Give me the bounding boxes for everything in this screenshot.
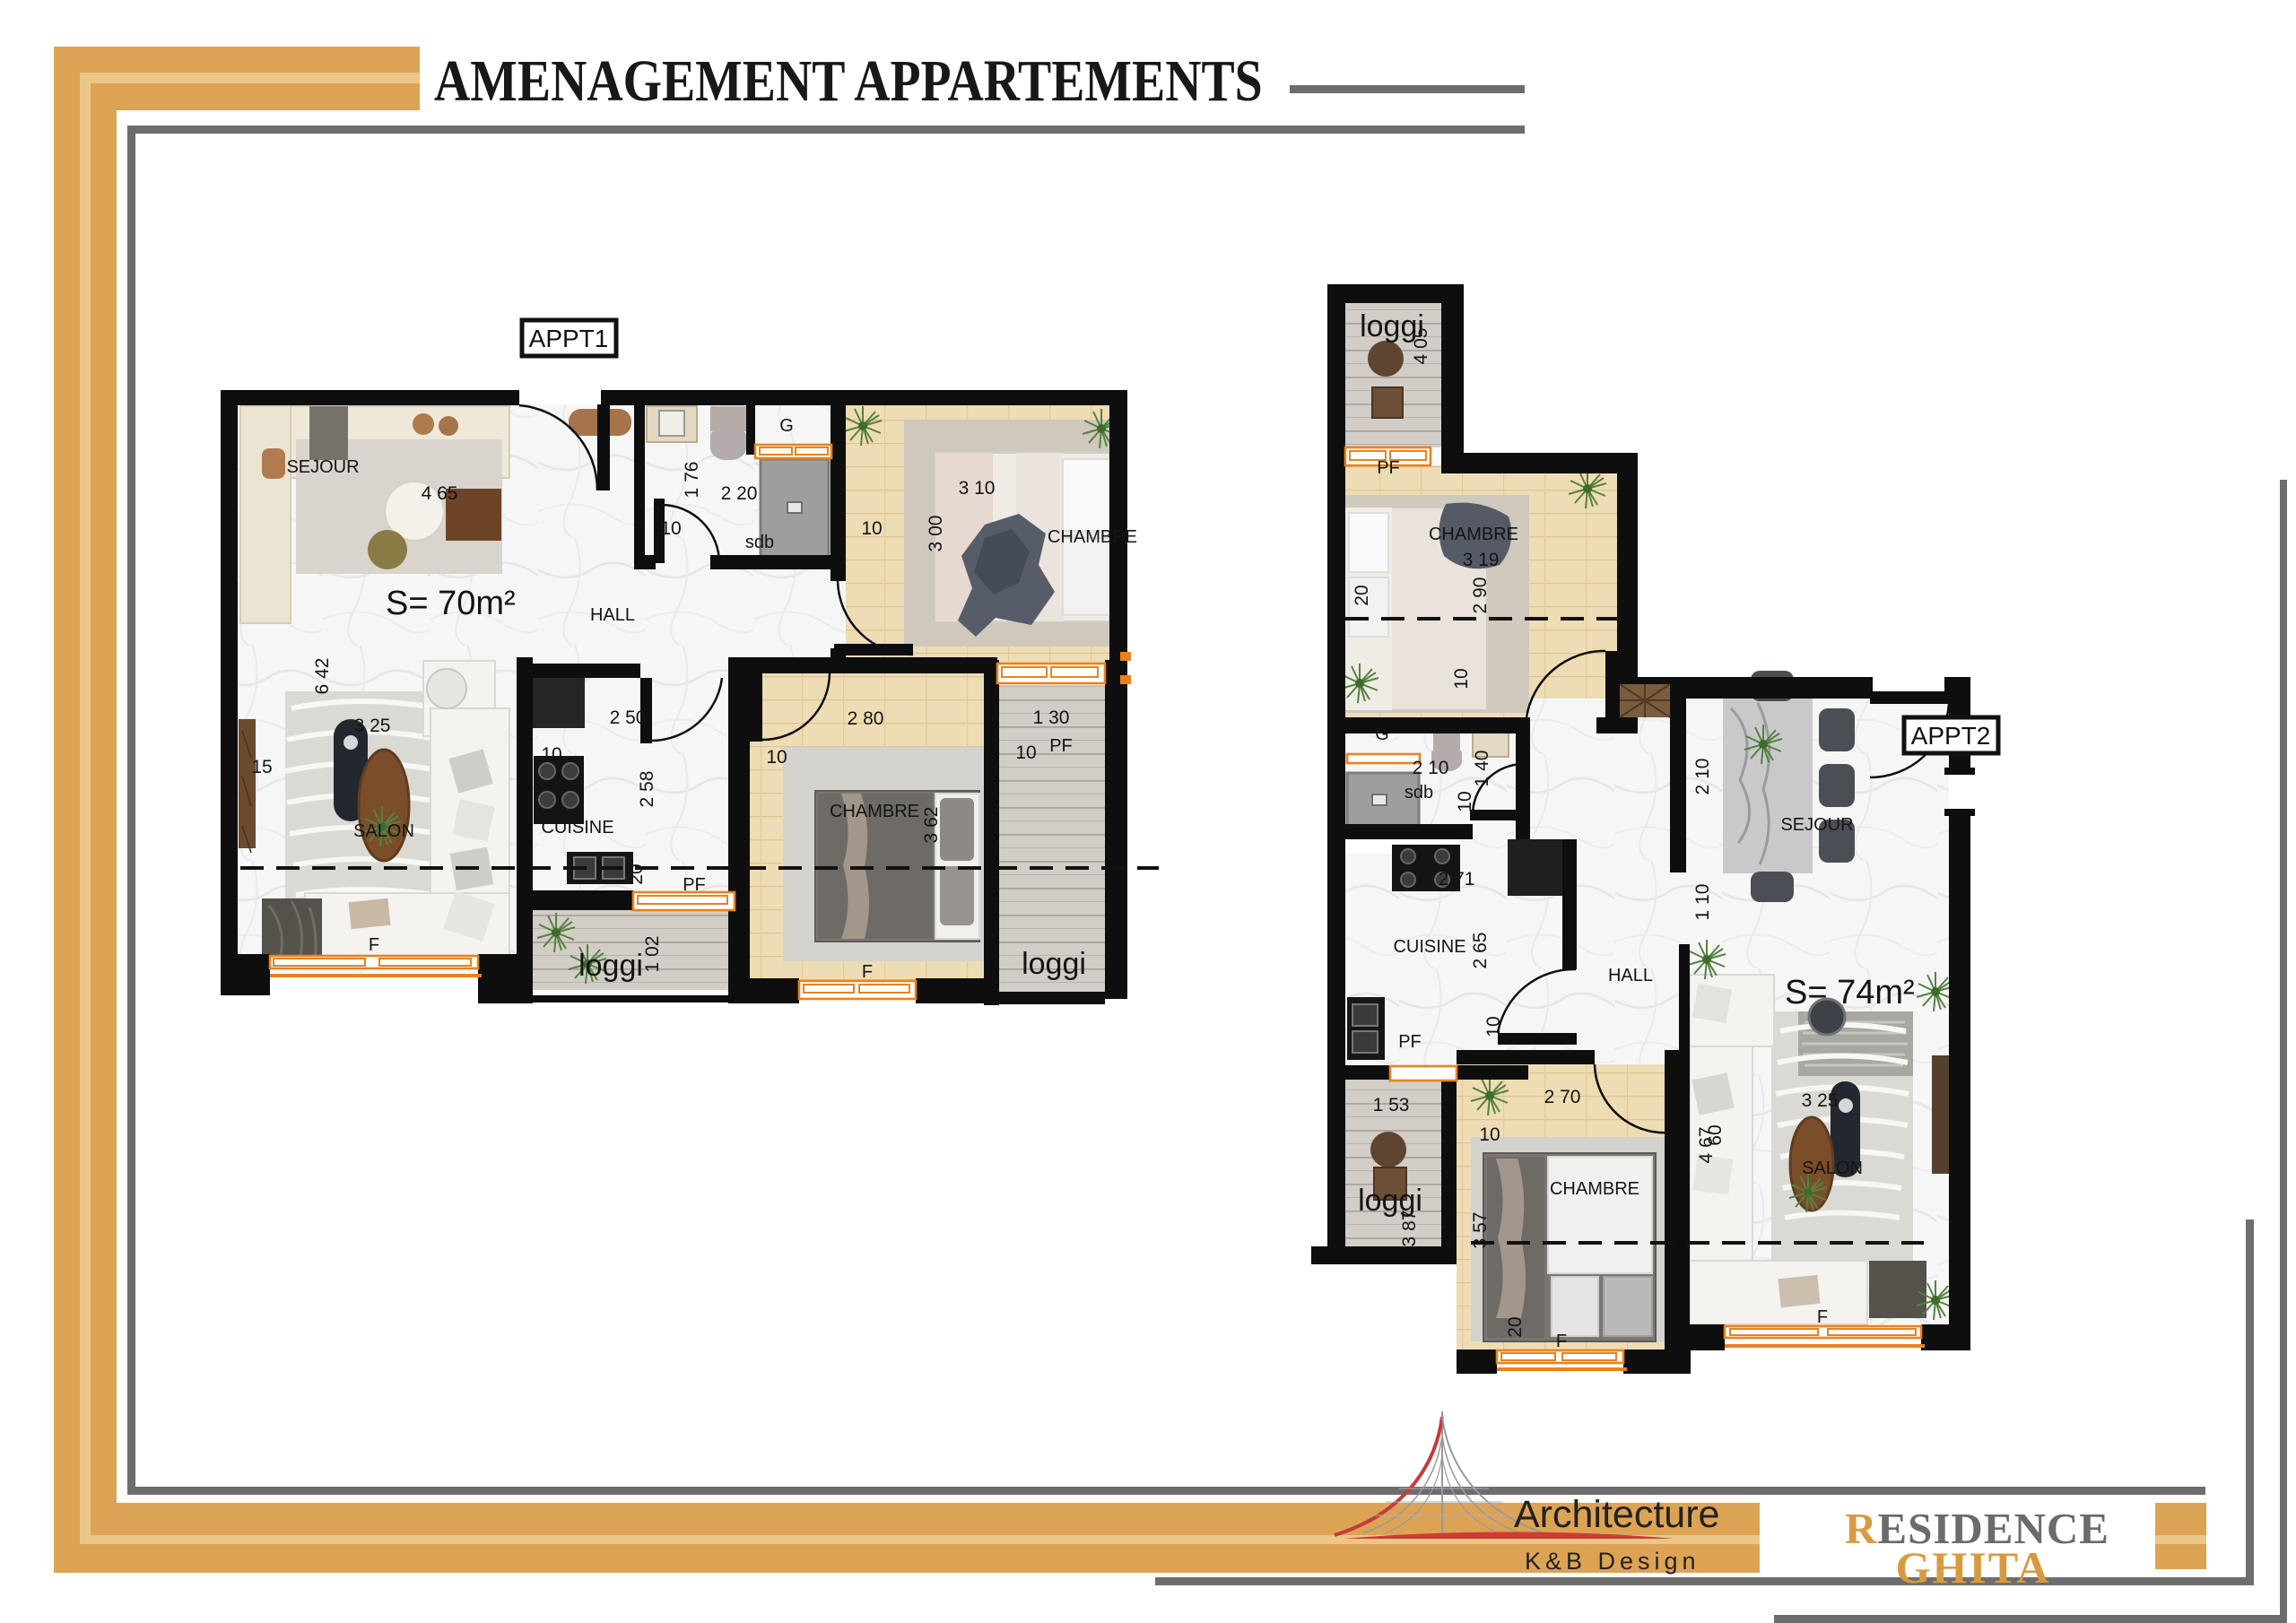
svg-text:2 65: 2 65 — [1470, 933, 1491, 969]
svg-text:F: F — [1556, 1332, 1567, 1351]
svg-text:1 30: 1 30 — [1033, 707, 1070, 728]
svg-text:CHAMBRE: CHAMBRE — [1048, 527, 1137, 547]
svg-text:2 10: 2 10 — [1692, 759, 1713, 795]
svg-text:2 20: 2 20 — [721, 483, 758, 504]
svg-text:2 80: 2 80 — [848, 708, 884, 729]
svg-text:3 00: 3 00 — [926, 516, 946, 552]
svg-text:2 90: 2 90 — [1470, 577, 1491, 614]
svg-text:F: F — [369, 935, 379, 955]
svg-text:PF: PF — [1377, 458, 1400, 478]
svg-text:HALL: HALL — [1608, 966, 1653, 985]
svg-text:2 71: 2 71 — [1439, 869, 1475, 890]
svg-text:F: F — [862, 962, 873, 982]
svg-text:SALON: SALON — [1802, 1159, 1863, 1178]
svg-text:4 05: 4 05 — [1411, 328, 1431, 365]
svg-text:S= 74m²: S= 74m² — [1785, 974, 1915, 1011]
svg-text:1 10: 1 10 — [1692, 884, 1713, 921]
svg-text:3 57: 3 57 — [1470, 1212, 1491, 1249]
svg-text:1 02: 1 02 — [642, 936, 663, 973]
svg-text:APPT1: APPT1 — [529, 325, 609, 352]
svg-text:PF: PF — [1398, 1032, 1422, 1052]
svg-text:GHITA: GHITA — [1896, 1542, 2051, 1593]
svg-text:1 76: 1 76 — [682, 462, 702, 499]
svg-text:sdb: sdb — [745, 533, 774, 552]
svg-text:CHAMBRE: CHAMBRE — [1550, 1179, 1639, 1199]
svg-text:loggi: loggi — [578, 949, 643, 983]
svg-text:10: 10 — [541, 744, 561, 765]
svg-text:CUISINE: CUISINE — [1393, 937, 1465, 957]
svg-text:10: 10 — [1451, 668, 1472, 689]
svg-text:2 58: 2 58 — [637, 771, 657, 808]
svg-text:SEJOUR: SEJOUR — [1780, 815, 1853, 835]
svg-text:10: 10 — [1483, 1016, 1504, 1037]
svg-text:PF: PF — [683, 875, 706, 895]
svg-text:1 53: 1 53 — [1373, 1095, 1410, 1115]
svg-text:20: 20 — [1352, 585, 1372, 605]
svg-text:CUISINE: CUISINE — [541, 818, 613, 838]
svg-text:10: 10 — [1479, 1124, 1500, 1145]
svg-text:CHAMBRE: CHAMBRE — [830, 802, 919, 821]
svg-text:G: G — [1375, 725, 1389, 744]
svg-text:4 65: 4 65 — [422, 483, 458, 504]
svg-text:SALON: SALON — [353, 821, 414, 841]
svg-text:3 10: 3 10 — [959, 478, 996, 499]
svg-text:HALL: HALL — [590, 605, 635, 625]
svg-text:APPT2: APPT2 — [1911, 722, 1991, 750]
svg-text:2 70: 2 70 — [1544, 1087, 1581, 1107]
svg-text:SEJOUR: SEJOUR — [286, 457, 359, 477]
svg-text:1 40: 1 40 — [1472, 751, 1492, 787]
svg-text:K&B Design: K&B Design — [1525, 1548, 1700, 1575]
svg-text:AMENAGEMENT APPARTEMENTS: AMENAGEMENT APPARTEMENTS — [434, 49, 1263, 114]
svg-text:6 42: 6 42 — [312, 658, 333, 695]
svg-text:3 62: 3 62 — [921, 807, 942, 844]
svg-text:20: 20 — [1505, 1316, 1526, 1337]
svg-text:10: 10 — [766, 747, 787, 768]
svg-text:10: 10 — [861, 518, 882, 539]
svg-text:F: F — [1817, 1307, 1828, 1327]
svg-text:10: 10 — [1015, 742, 1036, 763]
svg-text:2 10: 2 10 — [1413, 758, 1449, 778]
svg-text:Architecture: Architecture — [1514, 1493, 1719, 1536]
svg-text:3 19: 3 19 — [1463, 550, 1500, 570]
svg-text:60: 60 — [1705, 1124, 1726, 1145]
svg-text:sdb: sdb — [1405, 783, 1433, 803]
svg-text:15: 15 — [251, 757, 272, 777]
svg-text:CHAMBRE: CHAMBRE — [1429, 525, 1518, 544]
svg-text:3 87: 3 87 — [1399, 1211, 1420, 1247]
svg-text:loggi: loggi — [1022, 947, 1086, 981]
svg-text:3 25: 3 25 — [1802, 1090, 1839, 1111]
svg-text:20: 20 — [626, 864, 647, 884]
svg-text:2 50: 2 50 — [610, 707, 647, 728]
svg-text:3 25: 3 25 — [354, 716, 391, 736]
svg-text:S= 70m²: S= 70m² — [386, 585, 516, 622]
svg-text:PF: PF — [1049, 736, 1073, 756]
svg-text:10: 10 — [1455, 791, 1475, 811]
svg-text:10: 10 — [660, 518, 681, 539]
svg-text:G: G — [779, 416, 794, 436]
